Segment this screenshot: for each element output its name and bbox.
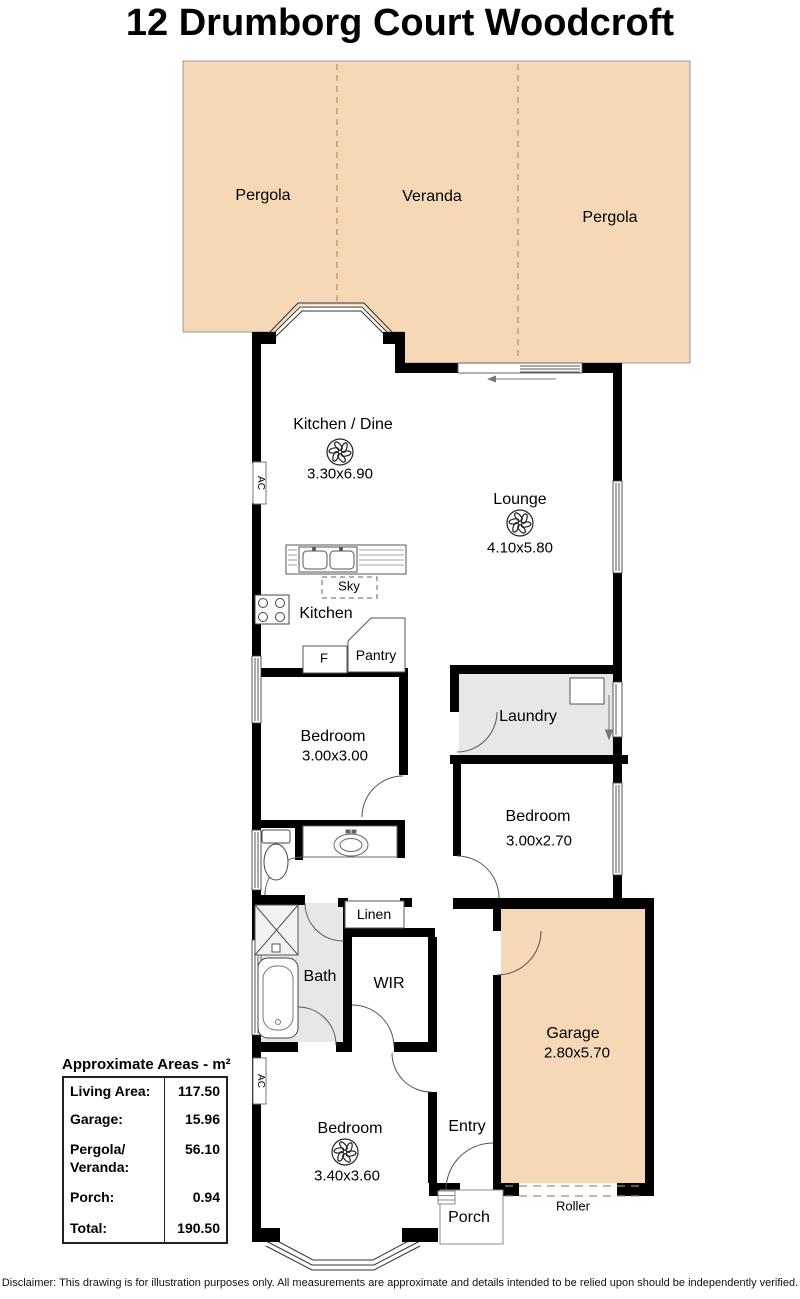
label-ac-bedroom: AC [254,1074,266,1088]
label-pergola-left: Pergola [235,187,290,205]
label-porch: Porch [448,1209,490,1227]
fan-icon-lounge [507,510,533,536]
area-value: 56.10 [164,1133,226,1181]
dims-bedroom-front: 3.40x3.60 [314,1167,380,1184]
floorplan-page: 12 Drumborg Court Woodcroft [0,0,800,1299]
area-value: 0.94 [164,1181,226,1212]
area-label: Total: [64,1212,164,1243]
label-fridge: F [320,652,328,667]
label-bedroom-front: Bedroom [318,1120,383,1138]
label-lounge: Lounge [493,491,546,509]
vanity-basin [303,826,397,857]
label-bath: Bath [304,968,337,986]
label-kitchen: Kitchen [299,605,352,623]
label-entry: Entry [448,1118,485,1136]
table-row: Porch: 0.94 [64,1181,226,1212]
fan-icon-bedroom-front [332,1139,358,1165]
label-garage: Garage [546,1025,599,1043]
area-label: Garage: [64,1106,164,1134]
dims-kitchen-dine: 3.30x6.90 [307,465,373,482]
label-bedroom-rear: Bedroom [506,808,571,826]
areas-table-title: Approximate Areas - m² [62,1056,228,1073]
label-veranda: Veranda [402,188,462,206]
dims-bedroom-rear: 3.00x2.70 [506,832,572,849]
area-value: 190.50 [164,1212,226,1243]
label-pergola-right: Pergola [582,209,637,227]
disclaimer-text: Disclaimer: This drawing is for illustra… [0,1277,800,1289]
laundry-tub [570,678,604,704]
dims-lounge: 4.10x5.80 [487,539,553,556]
shower [255,905,298,955]
label-linen: Linen [357,906,391,922]
areas-table: Approximate Areas - m² Living Area: 117.… [62,1056,228,1244]
label-laundry: Laundry [499,708,557,726]
stove [255,595,289,624]
table-row: Total: 190.50 [64,1212,226,1243]
fan-icon-kitchen-dine [327,439,353,465]
label-sky: Sky [338,580,360,595]
label-wir: WIR [373,975,404,993]
table-row: Garage: 15.96 [64,1106,226,1134]
table-row: Living Area: 117.50 [64,1078,226,1106]
bathtub [258,958,298,1038]
area-label: Living Area: [64,1078,164,1106]
kitchen-bench-sink [286,545,406,574]
label-bedroom-mid: Bedroom [301,728,366,746]
toilet [262,830,290,880]
pantry-outline [348,618,405,672]
area-label: Pergola/ Veranda: [64,1133,164,1181]
label-kitchen-dine: Kitchen / Dine [293,416,393,434]
label-roller: Roller [556,1200,590,1215]
area-value: 117.50 [164,1078,226,1106]
dims-garage: 2.80x5.70 [544,1044,610,1061]
label-pantry: Pantry [356,647,396,663]
area-value: 15.96 [164,1106,226,1134]
sliding-door [458,363,582,383]
area-label: Porch: [64,1181,164,1212]
table-row: Pergola/ Veranda: 56.10 [64,1133,226,1181]
dims-bedroom-mid: 3.00x3.00 [302,747,368,764]
label-ac-kitchen: AC [254,476,266,490]
